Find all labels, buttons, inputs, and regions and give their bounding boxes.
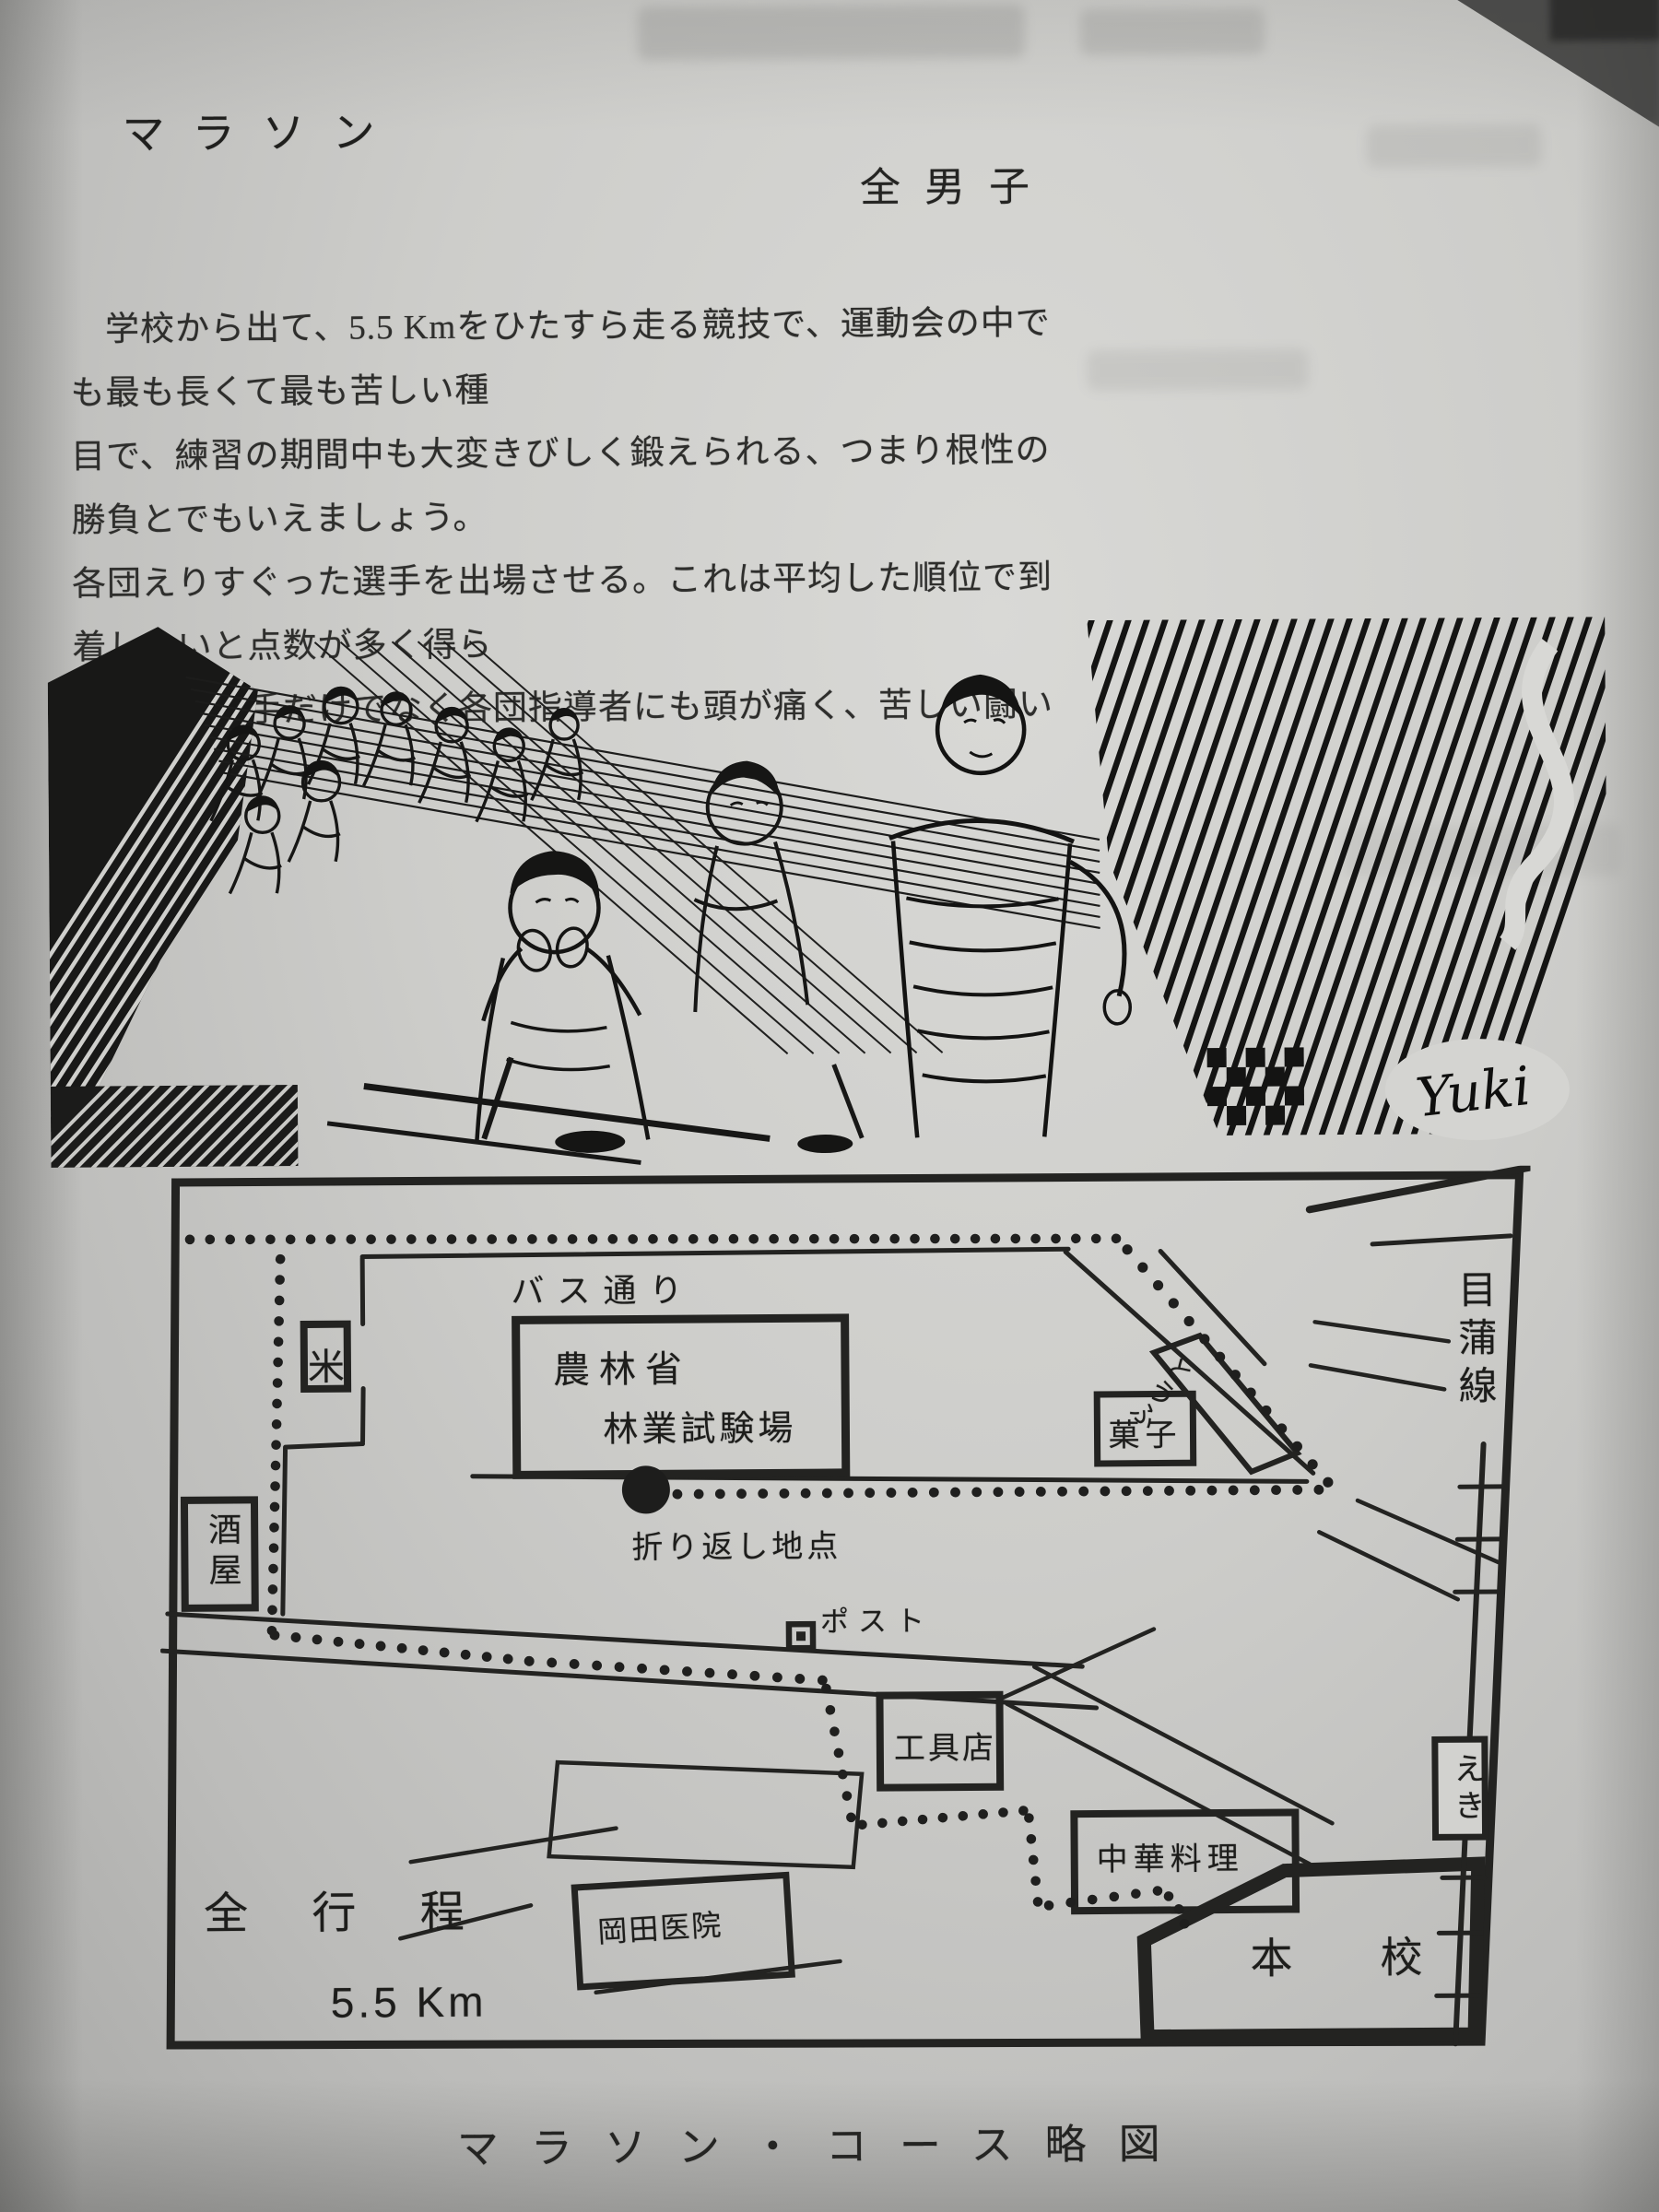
course-dotted-line	[185, 1227, 1336, 1935]
road-line	[1319, 1500, 1499, 1600]
postbox-symbol-center	[796, 1631, 806, 1641]
road-line	[1311, 1321, 1450, 1390]
label-rice-shop: 米	[308, 1337, 345, 1391]
city-block	[548, 1760, 863, 1869]
label-total-distance: 全 行 程	[204, 1876, 490, 1942]
label-okada-clinic: 岡田医院	[596, 1901, 724, 1951]
course-map: バス通り 米 農林省 林業試験場 菓子 とうふ 目蒲線 酒屋 折り返し地点 ポス…	[158, 1166, 1537, 2069]
label-bus-street: バス通り	[511, 1264, 695, 1312]
ink-shadow	[797, 1135, 853, 1153]
paragraph-line: 目で、練習の期間中も大変きびしく鍛えられる、つまり根性の勝負とでもいえましょう。	[71, 418, 1072, 553]
page-title: マラソン	[122, 99, 402, 161]
bleedthrough-smudge	[1367, 124, 1542, 168]
map-caption: マラソン・コース略図	[457, 2110, 1193, 2175]
white-road-shape	[1506, 644, 1565, 943]
page-content: マラソン 全男子 学校から出て、5.5 Kmをひたすら走る競技で、運動会の中でも…	[0, 0, 1659, 2212]
label-post-box: ポスト	[820, 1597, 934, 1640]
label-sake-shop: 酒屋	[198, 1512, 247, 1593]
road-line	[280, 1259, 365, 1615]
label-chinese-restaurant: 中華料理	[1097, 1833, 1244, 1879]
turnaround-dot	[622, 1465, 670, 1513]
road-line	[162, 1644, 1096, 1714]
artist-signature: Yuki	[1413, 1054, 1534, 1129]
label-forestry-ministry: 農林省	[553, 1339, 691, 1394]
runner-figure	[475, 850, 648, 1142]
road-line	[168, 1607, 1082, 1673]
motion-lines	[186, 671, 1100, 935]
bleedthrough-smudge	[1087, 348, 1308, 391]
label-forestry-station: 林業試験場	[603, 1399, 796, 1451]
label-station: えき	[1444, 1752, 1490, 1826]
paragraph-line: 学校から出て、5.5 Kmをひたすら走る競技で、運動会の中でも最も長くて最も苦し…	[70, 291, 1071, 426]
bleedthrough-smudge	[1080, 8, 1265, 55]
value-total-distance: 5.5 Km	[331, 1977, 488, 2028]
road-line	[362, 1249, 1068, 1256]
label-turnaround-point: 折り返し地点	[631, 1521, 841, 1568]
label-main-school: 本校	[1250, 1924, 1510, 1986]
label-mekama-line: 目蒲線	[1446, 1269, 1503, 1413]
road-line	[1372, 1236, 1511, 1244]
scanned-page: マラソン 全男子 学校から出て、5.5 Kmをひたすら走る競技で、運動会の中でも…	[0, 0, 1659, 2212]
ink-shadow	[555, 1131, 625, 1154]
label-tool-shop: 工具店	[894, 1723, 996, 1769]
runners-illustration: Yuki	[47, 617, 1608, 1171]
bleedthrough-smudge	[638, 4, 1025, 60]
byline-all-boys: 全男子	[860, 153, 1053, 213]
page-corner-shadow	[1550, 0, 1659, 41]
